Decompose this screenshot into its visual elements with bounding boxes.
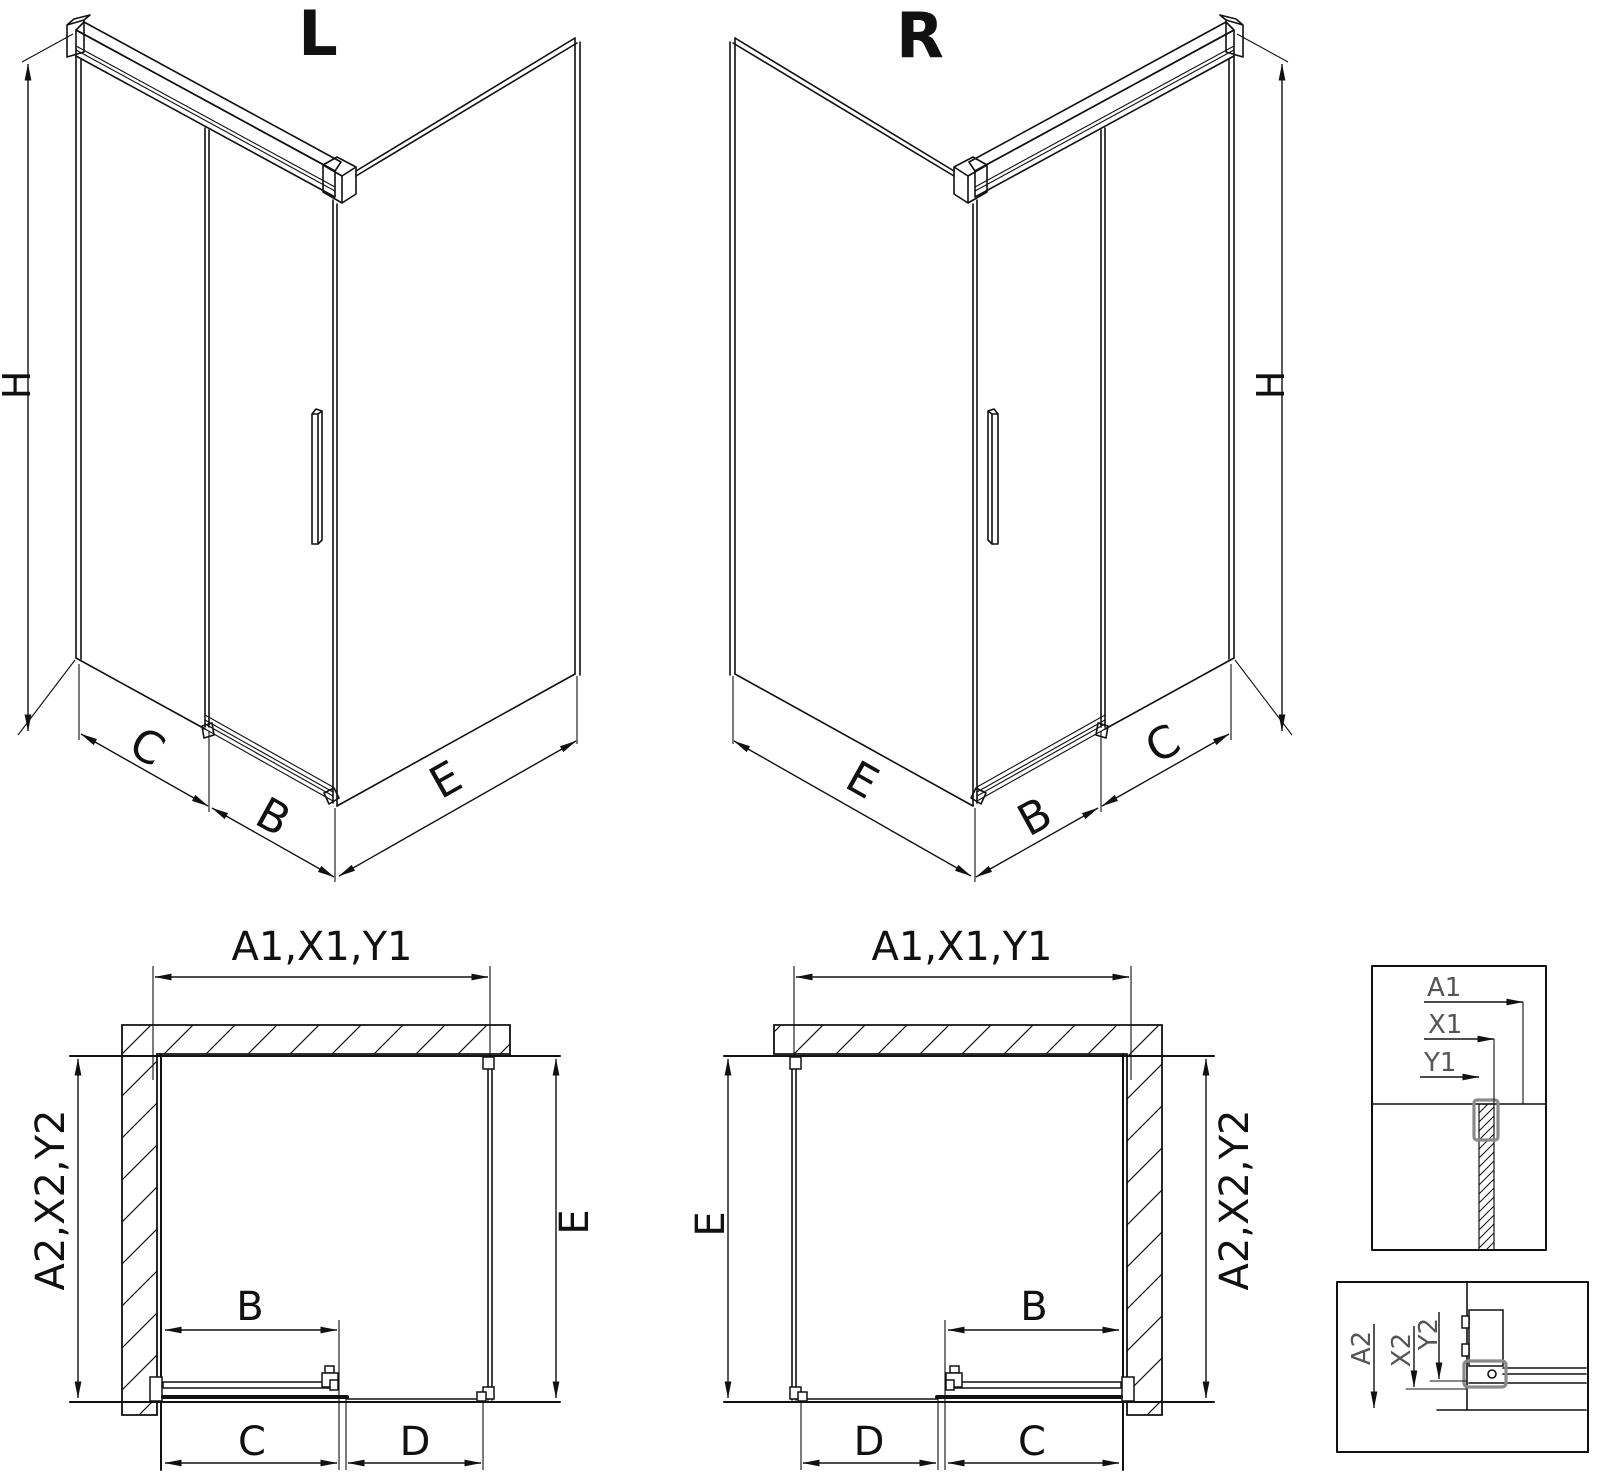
free-side-glass-edge [488,1056,492,1400]
plan-left-dim-side-label: A2,X2,Y2 [28,1110,74,1291]
wall-section [122,1025,510,1415]
plan-view-left: A1,X1,Y1 A2,X2,Y2 E B C D [28,924,598,1470]
glass-clamp-top [790,1057,801,1069]
plan-right-dim-top-label: A1,X1,Y1 [872,924,1053,970]
corner-edge [333,200,337,806]
plan-right-dim-b-label: B [1020,1284,1047,1330]
iso-left-dim-e-label: E [421,751,470,809]
profile-notch-top [1462,1316,1469,1328]
detail-frame [1372,966,1546,1250]
side-panel-top-edge [356,38,577,176]
shower-enclosure-diagram: L H C B E R H C B E [0,0,1600,1474]
wall-bracket [1122,1377,1134,1401]
roller-axle [1488,1370,1496,1378]
door-leading-edge [946,1380,954,1390]
plan-right-dim-c-label: C [1018,1419,1046,1465]
extension-lines [1494,1002,1523,1104]
plan-right-dim-e-label: E [688,1211,734,1236]
tick-x2-y2 [1406,1381,1467,1389]
bottom-track [205,715,333,801]
dim-line-e [339,741,576,876]
plan-left-dim-d-label: D [400,1419,431,1465]
glass-clamp-top [483,1057,494,1069]
iso-right-geometry [730,15,1292,882]
iso-left-title: L [298,0,338,70]
door-profile [1469,1310,1503,1366]
track-end-cap [477,1392,486,1401]
roller-top [325,1366,334,1373]
sliding-door-glass [954,1382,1121,1388]
detail-top-profile: A1 X1 Y1 [1372,966,1546,1250]
sliding-door-glass [163,1382,330,1388]
plan-view-right: A1,X1,Y1 A2,X2,Y2 E B C D [688,924,1258,1470]
plan-left-dim-e-label: E [552,1209,598,1234]
iso-right-title: R [896,0,944,72]
detail-bottom-y2-label: Y2 [1414,1318,1444,1351]
iso-view-right: R H C B E [730,0,1293,882]
door-handle [312,409,322,544]
technical-drawing-page: L H C B E R H C B E [0,0,1600,1474]
roller-top [950,1366,959,1373]
fixed-panel-bottom-edge [76,658,205,729]
free-side-glass-edge [792,1056,796,1400]
detail-bottom-profile: A2 X2 Y2 [1337,1282,1588,1452]
door-leading-edge [330,1380,338,1390]
side-panel-outer-edge [575,38,580,675]
track-end-cap [798,1392,807,1401]
plan-left-dim-top-label: A1,X1,Y1 [232,924,413,970]
wall-profile-hatch [1479,1104,1494,1250]
iso-view-left: L H C B E [0,0,580,882]
left-panel-outer-edge [76,56,81,659]
detail-bottom-x2-label: X2 [1387,1333,1417,1367]
wall-section [774,1025,1162,1415]
iso-right-dim-c-label: C [1137,715,1189,774]
door-glass-lines [1469,1368,1586,1383]
extension-lines [18,34,577,882]
plan-left-dim-c-label: C [238,1419,266,1465]
detail-top-a1-label: A1 [1427,973,1461,1003]
iso-left-dim-c-label: C [121,718,173,777]
iso-right-dim-e-label: E [837,751,886,809]
iso-left-dim-h-label: H [0,371,39,400]
iso-left-geometry [18,15,580,882]
detail-top-y1-label: Y1 [1423,1048,1456,1078]
plan-right-dim-side-label: A2,X2,Y2 [1212,1110,1258,1291]
iso-right-dim-b-label: B [1010,788,1061,847]
profile-notch-bottom [1462,1344,1469,1356]
detail-top-x1-label: X1 [1428,1010,1462,1040]
detail-bottom-a2-label: A2 [1347,1331,1377,1365]
plan-right-dim-d-label: D [854,1419,885,1465]
wall-bracket [150,1377,162,1401]
iso-left-dim-b-label: B [247,788,298,847]
fixed-panel-divider [205,128,209,727]
iso-right-dim-h-label: H [1249,371,1293,400]
plan-left-dim-b-label: B [236,1284,263,1330]
